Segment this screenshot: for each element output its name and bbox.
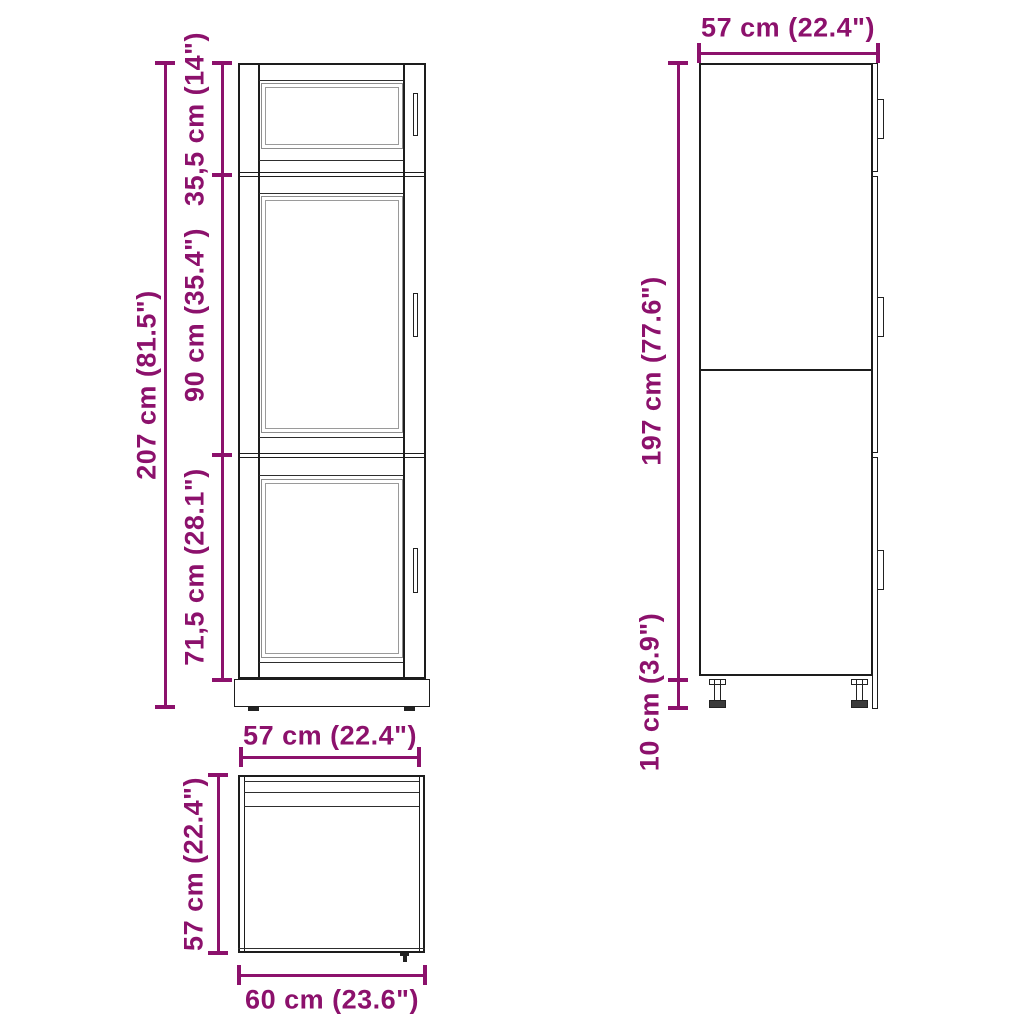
door-panel-inner [265, 87, 399, 145]
side-panel-line [419, 775, 421, 953]
dim-tick [668, 678, 688, 682]
dim-line-side-heights [677, 63, 681, 708]
front-edge-line [238, 948, 425, 949]
dim-tick [212, 678, 232, 682]
dimension-label-top-width: 57 cm (22.4") [243, 723, 417, 750]
dimension-label-top-depth: 57 cm (22.4") [181, 777, 208, 951]
plinth [234, 679, 430, 707]
door-handle [413, 93, 418, 136]
door-handle-profile [878, 550, 884, 590]
dimension-label-base-width: 60 cm (23.6") [245, 987, 419, 1014]
door-rail [259, 80, 403, 81]
section-divider [238, 176, 426, 178]
door-rail [259, 437, 403, 438]
door-panel-inner [265, 200, 399, 429]
dim-tick [208, 773, 228, 777]
section-divider [238, 457, 426, 459]
dim-line-top-width [241, 756, 419, 760]
dim-tick [697, 43, 701, 63]
section-divider [238, 453, 426, 455]
dim-tick [212, 453, 232, 457]
dimension-label-total-height: 207 cm (81.5") [134, 290, 161, 479]
dim-line-top-depth [217, 775, 221, 953]
section-divider [238, 172, 426, 174]
adjustable-foot-base [709, 700, 726, 708]
adjustable-foot-base [851, 700, 868, 708]
cabinet-body-top [238, 775, 425, 953]
foot-mark [248, 707, 259, 711]
dim-line-total-height [164, 63, 168, 707]
dim-tick [417, 747, 421, 767]
dim-tick [208, 951, 228, 955]
frame-stile-right [403, 63, 405, 679]
door-handle-stub [403, 955, 407, 962]
adjustable-foot-stem [856, 684, 863, 701]
dimension-label-top-section: 35,5 cm (14") [182, 32, 209, 206]
dim-tick [423, 965, 427, 985]
dim-tick [668, 61, 688, 65]
door-panel-middle [261, 196, 403, 433]
door-panel-inner [265, 483, 399, 654]
door-rail [259, 662, 403, 663]
dim-tick [668, 706, 688, 710]
door-handle [413, 293, 418, 337]
adjustable-foot-stem [714, 684, 721, 701]
door-rail [259, 193, 403, 194]
frame-stile-left [258, 63, 260, 679]
dim-tick [237, 965, 241, 985]
door-handle-profile [878, 297, 884, 337]
dim-line-sections [221, 63, 225, 680]
dim-tick [155, 705, 175, 709]
door-rail [259, 160, 403, 161]
door-panel-top [261, 83, 403, 149]
top-edge-line [244, 792, 419, 793]
side-shelf-line [699, 369, 873, 371]
door-handle-profile [878, 99, 884, 139]
dimension-label-body-height: 197 cm (77.6") [639, 276, 666, 465]
dim-tick [155, 61, 175, 65]
dim-line-base-width [239, 974, 425, 978]
door-panel-bottom [261, 479, 403, 658]
foot-mark [404, 707, 415, 711]
side-panel-line [244, 775, 246, 953]
top-edge-line [244, 781, 419, 782]
dim-tick [212, 173, 232, 177]
dim-tick [239, 747, 243, 767]
door-rail [259, 475, 403, 476]
dim-tick [212, 61, 232, 65]
dim-line-side-depth [699, 52, 878, 56]
dimension-label-middle-section: 90 cm (35.4") [182, 228, 209, 402]
dimension-label-side-depth: 57 cm (22.4") [701, 15, 875, 42]
dimension-diagram: 207 cm (81.5") 35,5 cm (14") 90 cm (35.4… [0, 0, 1024, 1024]
door-handle [413, 548, 418, 593]
dimension-label-bottom-section: 71,5 cm (28.1") [182, 468, 209, 665]
top-edge-line [244, 806, 419, 807]
dimension-label-leg-height: 10 cm (3.9") [637, 613, 664, 771]
dim-tick [876, 43, 880, 63]
